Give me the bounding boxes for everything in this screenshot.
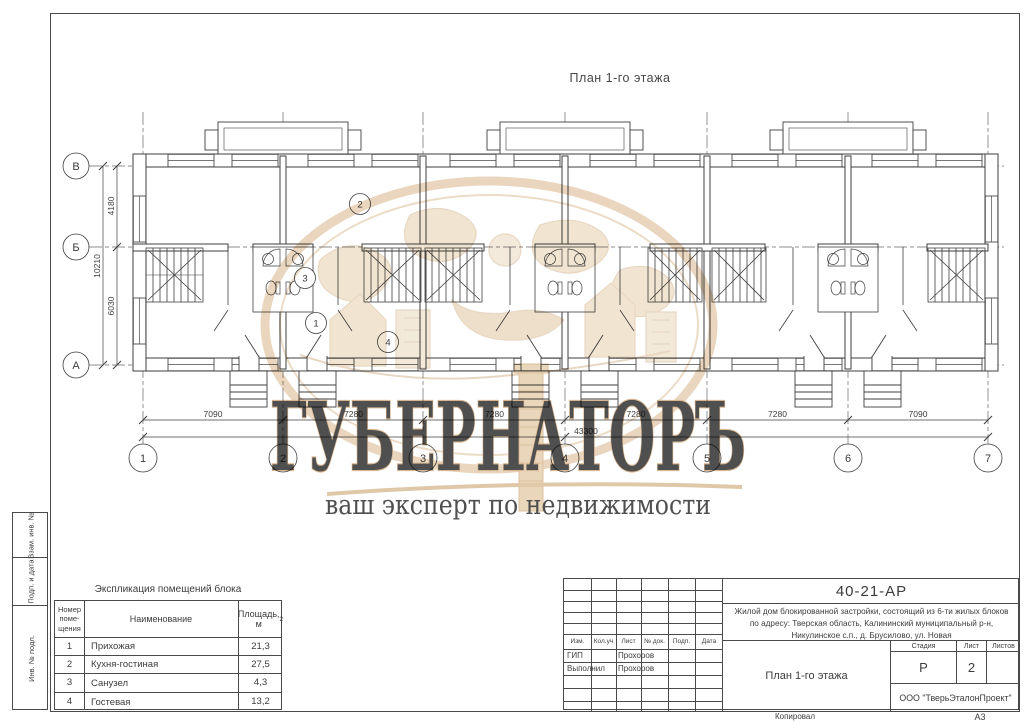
drawing-sheet: 1 2 3 4 7090 7280 xyxy=(0,0,1024,724)
watermark: ГУБЕРНАТОРЪ ваш эксперт по недвижимости xyxy=(265,181,746,521)
sidebar-label-podp: Подп. и дата xyxy=(27,559,36,603)
col-podp: Подп. xyxy=(668,634,695,649)
watermark-tagline: ваш эксперт по недвижимости xyxy=(325,490,711,521)
explication-title: Экспликация помещений блока xyxy=(54,582,282,596)
revision-grid: Изм. Кол.уч Лист № док. Подп. Дата ГИП П… xyxy=(564,579,723,711)
explication-row-name: Кухня-гостиная xyxy=(91,659,238,670)
dim-b-a: 6030 xyxy=(106,296,116,315)
col-kol: Кол.уч xyxy=(591,634,616,649)
explication-row-num: 2 xyxy=(55,655,84,673)
dim-v-b: 4180 xyxy=(106,196,116,215)
explication-header-num: Номерпоме-щения xyxy=(55,601,84,637)
role-exec: Выполнил xyxy=(567,664,605,673)
stage-label: Стадия xyxy=(891,641,956,652)
dim-6-7: 7090 xyxy=(909,409,928,419)
watermark-emblem-art xyxy=(300,208,676,378)
explication-row-area: 13,2 xyxy=(238,692,283,711)
col-izm: Изм. xyxy=(564,634,591,649)
col-list: Лист xyxy=(616,634,641,649)
room-tag-1: 1 xyxy=(313,319,318,330)
role-gip-name: Прохоров xyxy=(618,651,654,660)
col-data: Дата xyxy=(695,634,723,649)
sidebar-label-vzam: Взам. инв. № xyxy=(27,512,36,558)
explication-header-area: Площадь, м2 xyxy=(238,601,283,637)
explication-row-num: 4 xyxy=(55,692,84,711)
axis-col-7: 7 xyxy=(985,453,991,465)
explication-row-name: Гостевая xyxy=(91,697,238,708)
axis-col-6: 6 xyxy=(845,453,851,465)
watermark-brand: ГУБЕРНАТОРЪ xyxy=(270,382,746,493)
sidebar-label-inv: Инв. № подл. xyxy=(27,635,36,682)
project-description: Жилой дом блокированной застройки, состо… xyxy=(723,604,1020,641)
role-exec-name: Прохоров xyxy=(618,664,654,673)
dim-1-2: 7090 xyxy=(204,409,223,419)
sheet-label: Лист xyxy=(956,641,986,652)
axis-row-a: А xyxy=(72,360,80,372)
explication-header-name: Наименование xyxy=(84,601,238,637)
role-gip: ГИП xyxy=(567,651,583,660)
explication-row-area: 4,3 xyxy=(238,673,283,692)
explication-row-num: 1 xyxy=(55,637,84,655)
explication-row-area: 27,5 xyxy=(238,655,283,673)
axis-row-b: Б xyxy=(72,242,79,254)
room-tag-3: 3 xyxy=(302,274,307,285)
sheet-value: 2 xyxy=(956,652,986,683)
drawing-title: План 1-го этажа xyxy=(723,641,891,711)
explication-row-name: Прихожая xyxy=(91,641,238,652)
page-title: План 1-го этажа xyxy=(560,70,680,86)
format-label: А3 xyxy=(958,710,1002,723)
col-doc: № док. xyxy=(641,634,668,649)
copied-label: Копировал xyxy=(750,710,840,723)
company-name: ООО "ТверьЭталонПроект" xyxy=(891,683,1020,711)
bay-window-group xyxy=(205,122,926,156)
sheets-value xyxy=(986,652,1020,683)
explication-row-area: 21,3 xyxy=(238,637,283,655)
dim-5-6: 7280 xyxy=(768,409,787,419)
dim-left-total: 10210 xyxy=(92,254,102,278)
axis-col-1: 1 xyxy=(140,453,146,465)
axis-row-v: В xyxy=(72,161,79,173)
sheets-label: Листов xyxy=(986,641,1020,652)
explication-row-num: 3 xyxy=(55,673,84,692)
frame-sidebar: Взам. инв. № Подп. и дата Инв. № подл. xyxy=(12,512,48,710)
stage-value: Р xyxy=(891,652,956,683)
explication-row-name: Санузел xyxy=(91,678,238,689)
document-code: 40-21-АР xyxy=(723,579,1020,604)
explication-table: Номерпоме-щения Наименование Площадь, м2… xyxy=(54,600,282,710)
title-block: Изм. Кол.уч Лист № док. Подп. Дата ГИП П… xyxy=(563,578,1019,710)
